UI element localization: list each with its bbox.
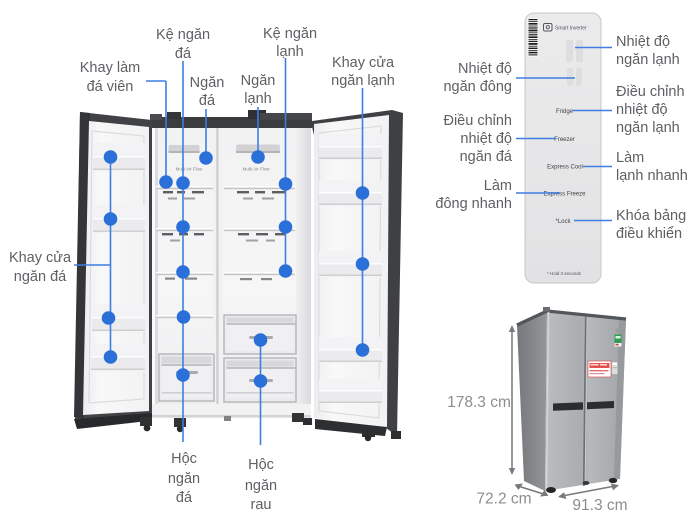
svg-text:ngăn lạnh: ngăn lạnh: [616, 120, 680, 136]
svg-text:* Hold 3 seconds: * Hold 3 seconds: [547, 271, 582, 276]
svg-text:ngăn đông: ngăn đông: [443, 79, 512, 95]
svg-text:ngăn đá: ngăn đá: [460, 149, 513, 165]
svg-text:đá: đá: [199, 93, 216, 109]
svg-text:đá viên: đá viên: [87, 79, 134, 95]
svg-text:178.3 cm: 178.3 cm: [447, 394, 511, 411]
svg-text:ngăn: ngăn: [168, 471, 200, 487]
svg-text:rau: rau: [251, 497, 272, 513]
svg-text:Điều chỉnh: Điều chỉnh: [443, 113, 512, 129]
svg-text:Kệ ngăn: Kệ ngăn: [156, 27, 210, 43]
svg-text:đông nhanh: đông nhanh: [435, 196, 512, 212]
svg-text:đá: đá: [176, 490, 193, 506]
svg-text:Freezer: Freezer: [554, 137, 575, 143]
svg-text:Khay làm: Khay làm: [80, 60, 140, 76]
svg-text:Kệ ngăn: Kệ ngăn: [263, 26, 317, 42]
svg-text:lạnh: lạnh: [244, 91, 271, 107]
svg-text:Khóa bảng: Khóa bảng: [616, 208, 686, 224]
svg-text:*Lock: *Lock: [555, 219, 571, 225]
svg-text:Làm: Làm: [616, 150, 644, 166]
svg-text:Fridge: Fridge: [556, 109, 574, 115]
svg-text:Ngăn: Ngăn: [190, 75, 225, 91]
svg-text:Nhiệt độ: Nhiệt độ: [458, 61, 512, 77]
svg-text:Khay cửa: Khay cửa: [9, 250, 72, 266]
svg-text:ngăn lạnh: ngăn lạnh: [616, 52, 680, 68]
svg-text:lạnh: lạnh: [276, 44, 303, 60]
svg-text:Smart Inverter: Smart Inverter: [555, 26, 587, 32]
svg-text:lạnh nhanh: lạnh nhanh: [616, 168, 688, 184]
svg-text:đá: đá: [175, 46, 192, 62]
svg-text:Express Cool: Express Cool: [547, 165, 583, 171]
svg-text:Làm: Làm: [484, 178, 512, 194]
svg-text:Khay cửa: Khay cửa: [332, 55, 395, 71]
svg-text:Multi Air Flow: Multi Air Flow: [176, 167, 204, 172]
svg-text:Điều chỉnh: Điều chỉnh: [616, 84, 685, 100]
svg-text:ngăn lạnh: ngăn lạnh: [331, 73, 395, 89]
svg-text:ngăn đá: ngăn đá: [14, 269, 67, 285]
svg-text:Hộc: Hộc: [248, 457, 274, 473]
svg-text:nhiệt độ: nhiệt độ: [616, 102, 668, 118]
svg-text:91.3 cm: 91.3 cm: [572, 497, 627, 514]
svg-text:điều khiển: điều khiển: [616, 226, 682, 242]
svg-text:Nhiệt độ: Nhiệt độ: [616, 34, 670, 50]
svg-text:Hộc: Hộc: [171, 451, 197, 467]
svg-text:ngăn: ngăn: [245, 478, 277, 494]
svg-text:Ngăn: Ngăn: [241, 73, 276, 89]
svg-text:72.2 cm: 72.2 cm: [476, 491, 531, 508]
svg-text:nhiệt độ: nhiệt độ: [460, 131, 512, 147]
svg-text:Multi Air Flow: Multi Air Flow: [243, 167, 271, 172]
